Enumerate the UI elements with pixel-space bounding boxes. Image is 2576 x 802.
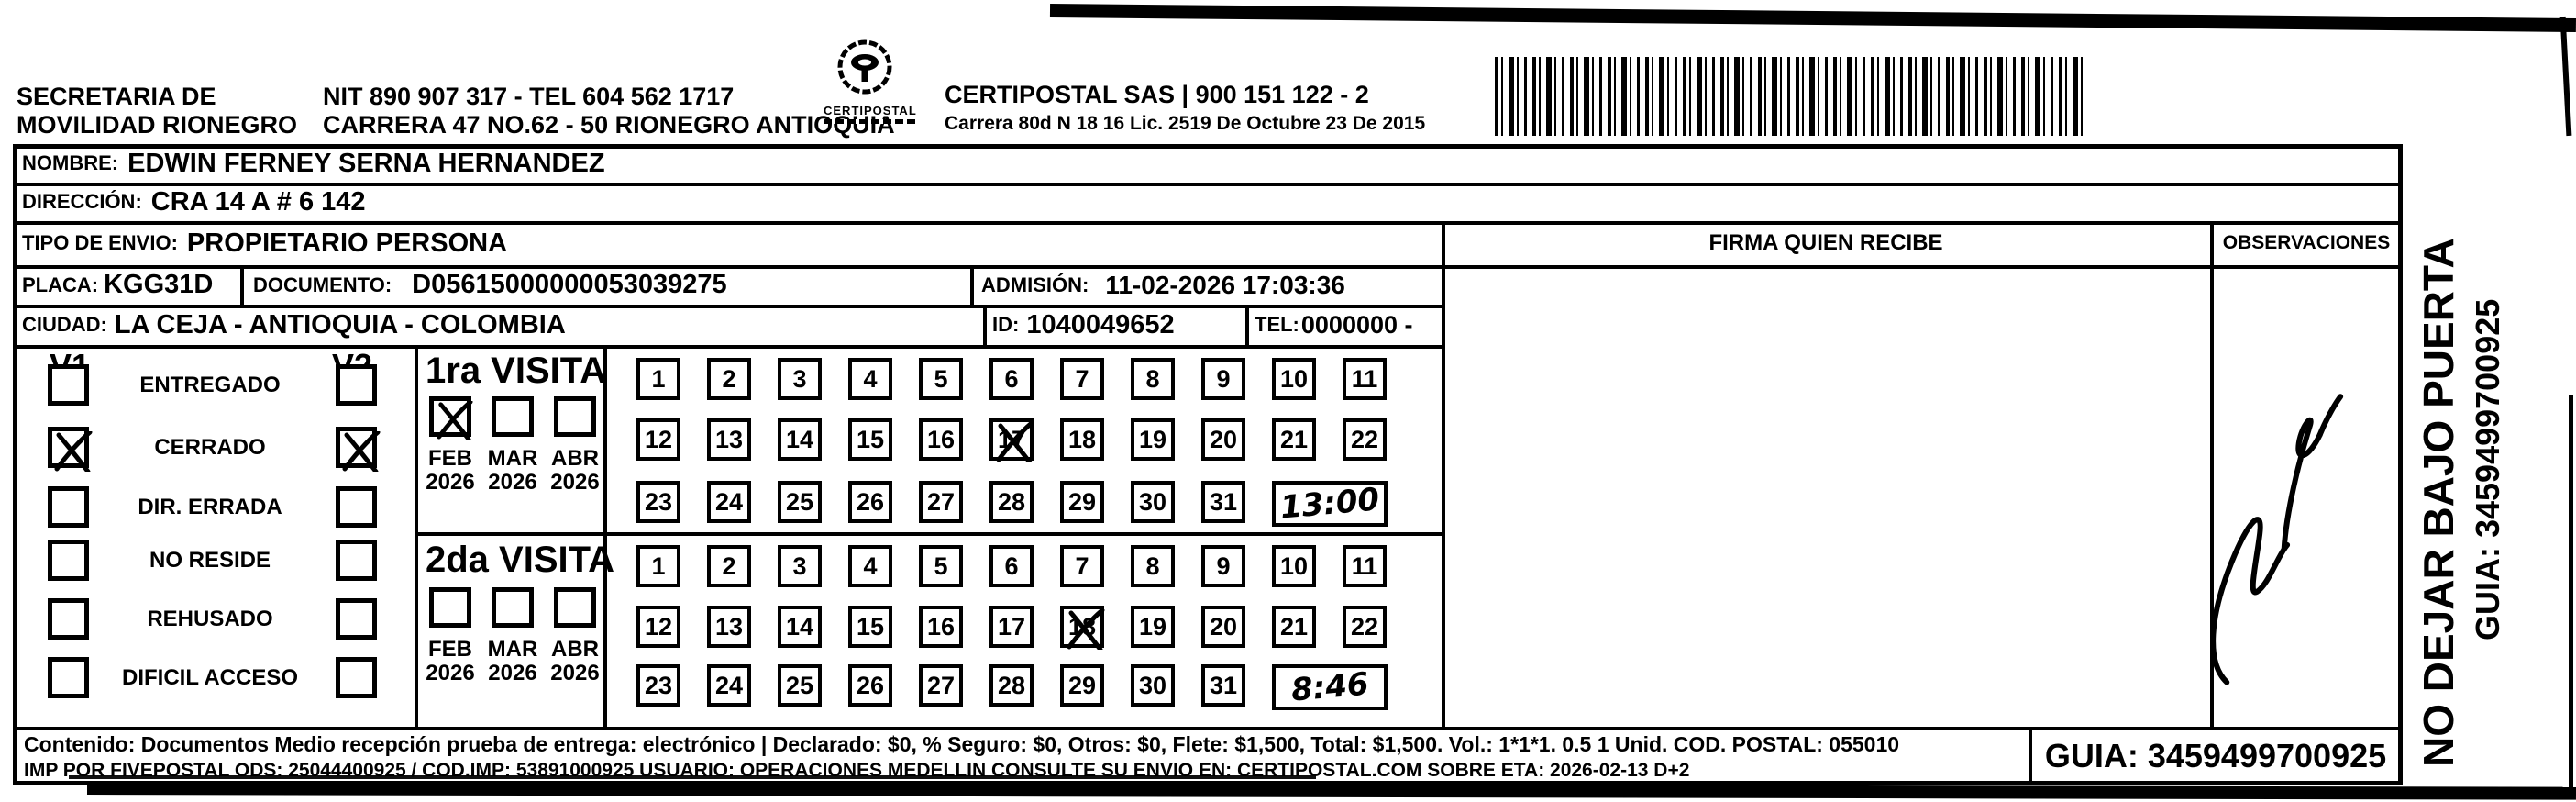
v1-checkbox-no-reside: [48, 540, 89, 581]
visit2-month-checkbox-feb: [429, 587, 471, 628]
visit1-day-15: 15: [848, 418, 892, 461]
guia-cell: GUIA: 3459499700925: [2029, 727, 2403, 785]
direccion-value: CRA 14 A # 6 142: [151, 187, 366, 217]
visit1-day-13: 13: [707, 418, 751, 461]
visit2-day-31: 31: [1201, 664, 1245, 707]
visit2-day-17: 17: [989, 606, 1034, 648]
footer-line2: IMP POR FIVEPOSTAL ODS: 25044400925 / CO…: [24, 760, 2014, 782]
v1-checkbox-dificil-acceso: [48, 657, 89, 698]
side-note: NO DEJAR BAJO PUERTA GUIA: 3459499700925: [2412, 162, 2511, 767]
side-note-no-dejar: NO DEJAR BAJO PUERTA: [2412, 162, 2465, 767]
visit2-month-checkbox-abr: [554, 587, 596, 628]
placa-cell: PLACA: KGG31D: [22, 265, 213, 305]
placa-value: KGG31D: [104, 270, 213, 300]
ciudad-cell: CIUDAD: LA CEJA - ANTIOQUIA - COLOMBIA: [22, 305, 566, 345]
visit1-day-11: 11: [1343, 358, 1387, 400]
visit1-time-handwriting: 13:00: [1278, 481, 1380, 526]
sender-name-line1: SECRETARIA DE: [17, 83, 297, 111]
scan-artifact-top-right-hook: [2560, 17, 2572, 136]
visit2-month-year: 2026: [481, 661, 545, 686]
visit1-time-box: 13:00: [1272, 481, 1388, 527]
visit2-day-16: 16: [919, 606, 963, 648]
visit1-day-30: 30: [1131, 481, 1175, 523]
visit2-month-year: 2026: [543, 661, 607, 686]
visit1-month-label: MAR: [481, 446, 545, 472]
direccion-label: DIRECCIÓN:: [22, 190, 142, 214]
visit2-day-19: 19: [1131, 606, 1175, 648]
visit2-day-28: 28: [989, 664, 1034, 707]
visit1-day-10: 10: [1272, 358, 1316, 400]
carrier-info: CERTIPOSTAL SAS | 900 151 122 - 2 Carrer…: [945, 81, 1425, 135]
scan-artifact-right-edge: [2569, 395, 2573, 789]
visit2-time-handwriting: 8:46: [1289, 665, 1370, 708]
status-label: DIR. ERRADA: [95, 495, 325, 520]
visit2-title: 2da VISITA: [426, 540, 614, 581]
footer-terms: Contenido: Documentos Medio recepción pr…: [24, 732, 2014, 782]
v1-checkbox-entregado: [48, 364, 89, 406]
visit1-day-20: 20: [1201, 418, 1245, 461]
visit1-day-22: 22: [1343, 418, 1387, 461]
carrier-name-nit: CERTIPOSTAL SAS | 900 151 122 - 2: [945, 81, 1425, 109]
status-label: DIFICIL ACCESO: [95, 665, 325, 691]
visit1-day-25: 25: [778, 481, 822, 523]
nombre-label: NOMBRE:: [22, 151, 118, 175]
direccion-row: DIRECCIÓN: CRA 14 A # 6 142: [22, 183, 366, 221]
visit2-day-13: 13: [707, 606, 751, 648]
visit1-day-x-mark: [993, 422, 1035, 462]
visit2-day-1: 1: [636, 545, 680, 587]
tel-cell: TEL: 0000000 -: [1255, 305, 1413, 345]
ciudad-label: CIUDAD:: [22, 313, 107, 337]
visit2-day-10: 10: [1272, 545, 1316, 587]
signature-handwriting: [2150, 363, 2394, 700]
ciudad-value: LA CEJA - ANTIOQUIA - COLOMBIA: [115, 310, 566, 340]
v2-checkbox-dir-errada: [336, 486, 377, 528]
visit1-month-label: FEB: [418, 446, 482, 472]
visit2-day-8: 8: [1131, 545, 1175, 587]
visit2-time-box: 8:46: [1272, 664, 1388, 710]
visit2-day-20: 20: [1201, 606, 1245, 648]
documento-cell: DOCUMENTO: D05615000000053039275: [253, 265, 727, 305]
visit2-day-15: 15: [848, 606, 892, 648]
v2-checkbox-rehusado: [336, 598, 377, 640]
visit1-day-1: 1: [636, 358, 680, 400]
visit2-month-checkbox-mar: [492, 587, 534, 628]
status-checkbox-panel: V1 V2 ENTREGADOCERRADODIR. ERRADANO RESI…: [13, 345, 415, 727]
visit1-day-12: 12: [636, 418, 680, 461]
nombre-value: EDWIN FERNEY SERNA HERNANDEZ: [127, 149, 604, 179]
firma-header-text: FIRMA QUIEN RECIBE: [1708, 230, 1942, 256]
tel-label: TEL:: [1255, 313, 1299, 337]
status-label: CERRADO: [95, 435, 325, 461]
visit1-day-29: 29: [1060, 481, 1104, 523]
tel-value: 0000000 -: [1301, 311, 1413, 340]
id-value: 1040049652: [1026, 310, 1174, 340]
visit1-day-16: 16: [919, 418, 963, 461]
status-label: ENTREGADO: [95, 373, 325, 398]
v2-checkbox-entregado: [336, 364, 377, 406]
visit2-month-label: MAR: [481, 637, 545, 663]
status-label: NO RESIDE: [95, 548, 325, 574]
sender-contact: NIT 890 907 317 - TEL 604 562 1717 CARRE…: [323, 83, 895, 139]
placa-label: PLACA:: [22, 273, 98, 297]
visit2-day-6: 6: [989, 545, 1034, 587]
visit2-day-24: 24: [707, 664, 751, 707]
side-note-guia: GUIA: 3459499700925: [2465, 162, 2511, 767]
visit1-month-checkbox-mar: [492, 396, 534, 437]
visit2-month-label: ABR: [543, 637, 607, 663]
admision-value: 11-02-2026 17:03:36: [1105, 271, 1345, 300]
visit2-day-9: 9: [1201, 545, 1245, 587]
visit1-month-year: 2026: [481, 470, 545, 496]
visit2-day-26: 26: [848, 664, 892, 707]
visit1-day-31: 31: [1201, 481, 1245, 523]
sender-name-line2: MOVILIDAD RIONEGRO: [17, 111, 297, 139]
visit1-month-year: 2026: [543, 470, 607, 496]
sender-name: SECRETARIA DE MOVILIDAD RIONEGRO: [17, 83, 297, 139]
visit1-day-7: 7: [1060, 358, 1104, 400]
v1-checkbox-rehusado: [48, 598, 89, 640]
nombre-row: NOMBRE: EDWIN FERNEY SERNA HERNANDEZ: [22, 144, 605, 183]
status-label: REHUSADO: [95, 607, 325, 632]
visit2-day-x-mark: [1064, 609, 1106, 650]
id-cell: ID: 1040049652: [992, 305, 1175, 345]
visit2-day-7: 7: [1060, 545, 1104, 587]
visit1-day-27: 27: [919, 481, 963, 523]
visit2-day-23: 23: [636, 664, 680, 707]
tipo-envio-label: TIPO DE ENVIO:: [22, 231, 178, 255]
footer-line1: Contenido: Documentos Medio recepción pr…: [24, 732, 2014, 757]
visit2-month-label: FEB: [418, 637, 482, 663]
v2-checkbox-no-reside: [336, 540, 377, 581]
admision-cell: ADMISIÓN: 11-02-2026 17:03:36: [981, 265, 1345, 305]
carrier-address-lic: Carrera 80d N 18 16 Lic. 2519 De Octubre…: [945, 113, 1425, 135]
sender-nit-tel: NIT 890 907 317 - TEL 604 562 1717: [323, 83, 895, 111]
visit1-day-14: 14: [778, 418, 822, 461]
tipo-envio-value: PROPIETARIO PERSONA: [187, 228, 507, 259]
visit2-day-21: 21: [1272, 606, 1316, 648]
visit1-day-24: 24: [707, 481, 751, 523]
visit1-month-year: 2026: [418, 470, 482, 496]
visit1-day-6: 6: [989, 358, 1034, 400]
visit2-day-25: 25: [778, 664, 822, 707]
documento-label: DOCUMENTO:: [253, 273, 392, 297]
visit1-day-28: 28: [989, 481, 1034, 523]
tipo-envio-row: TIPO DE ENVIO: PROPIETARIO PERSONA: [22, 221, 507, 265]
certipostal-logo-icon: [824, 37, 906, 101]
observaciones-header-text: OBSERVACIONES: [2223, 232, 2390, 254]
visit1-day-8: 8: [1131, 358, 1175, 400]
visit2-day-3: 3: [778, 545, 822, 587]
certipostal-logo-tagline: [824, 119, 915, 124]
id-label: ID:: [992, 313, 1019, 337]
admision-label: ADMISIÓN:: [981, 273, 1089, 297]
scan-artifact-top-bar: [1050, 4, 2576, 32]
v1-checkbox-cerrado: [48, 427, 89, 468]
month-check-x-mark: [434, 401, 474, 440]
firma-header-cell: FIRMA QUIEN RECIBE: [1442, 221, 2210, 265]
visit1-title: 1ra VISITA: [426, 351, 606, 392]
visit2-day-22: 22: [1343, 606, 1387, 648]
visit1-day-3: 3: [778, 358, 822, 400]
visit1-month-checkbox-abr: [554, 396, 596, 437]
visit2-day-5: 5: [919, 545, 963, 587]
visit1-day-23: 23: [636, 481, 680, 523]
visit1-day-17: 17: [989, 418, 1034, 461]
visit2-day-18: 18: [1060, 606, 1104, 648]
v2-checkbox-dificil-acceso: [336, 657, 377, 698]
documento-value: D05615000000053039275: [412, 270, 727, 300]
delivery-form-scan: SECRETARIA DE MOVILIDAD RIONEGRO NIT 890…: [0, 0, 2576, 802]
sender-address: CARRERA 47 NO.62 - 50 RIONEGRO ANTIOQUIA: [323, 111, 895, 139]
observaciones-header-cell: OBSERVACIONES: [2210, 221, 2403, 265]
visit1-day-21: 21: [1272, 418, 1316, 461]
visit2-day-14: 14: [778, 606, 822, 648]
visit1-day-4: 4: [848, 358, 892, 400]
v1-checkbox-dir-errada: [48, 486, 89, 528]
v2-checkbox-cerrado: [336, 427, 377, 468]
visit1-day-26: 26: [848, 481, 892, 523]
visit2-day-4: 4: [848, 545, 892, 587]
tracking-barcode: [1495, 57, 2086, 136]
visit1-month-checkbox-feb: [429, 396, 471, 437]
visit2-day-11: 11: [1343, 545, 1387, 587]
visit2-day-30: 30: [1131, 664, 1175, 707]
visit2-day-29: 29: [1060, 664, 1104, 707]
visit1-day-19: 19: [1131, 418, 1175, 461]
certipostal-logo: CERTIPOSTAL: [824, 37, 924, 128]
visit2-day-27: 27: [919, 664, 963, 707]
v1-check-x-mark: [52, 431, 93, 472]
visit1-day-5: 5: [919, 358, 963, 400]
visit2-month-year: 2026: [418, 661, 482, 686]
guia-number: GUIA: 3459499700925: [2045, 737, 2386, 775]
certipostal-logo-text: CERTIPOSTAL: [824, 104, 924, 117]
visit2-day-12: 12: [636, 606, 680, 648]
visit1-day-18: 18: [1060, 418, 1104, 461]
v2-check-x-mark: [340, 431, 381, 472]
visit1-month-label: ABR: [543, 446, 607, 472]
visit1-day-9: 9: [1201, 358, 1245, 400]
visit1-day-2: 2: [707, 358, 751, 400]
visit2-day-2: 2: [707, 545, 751, 587]
